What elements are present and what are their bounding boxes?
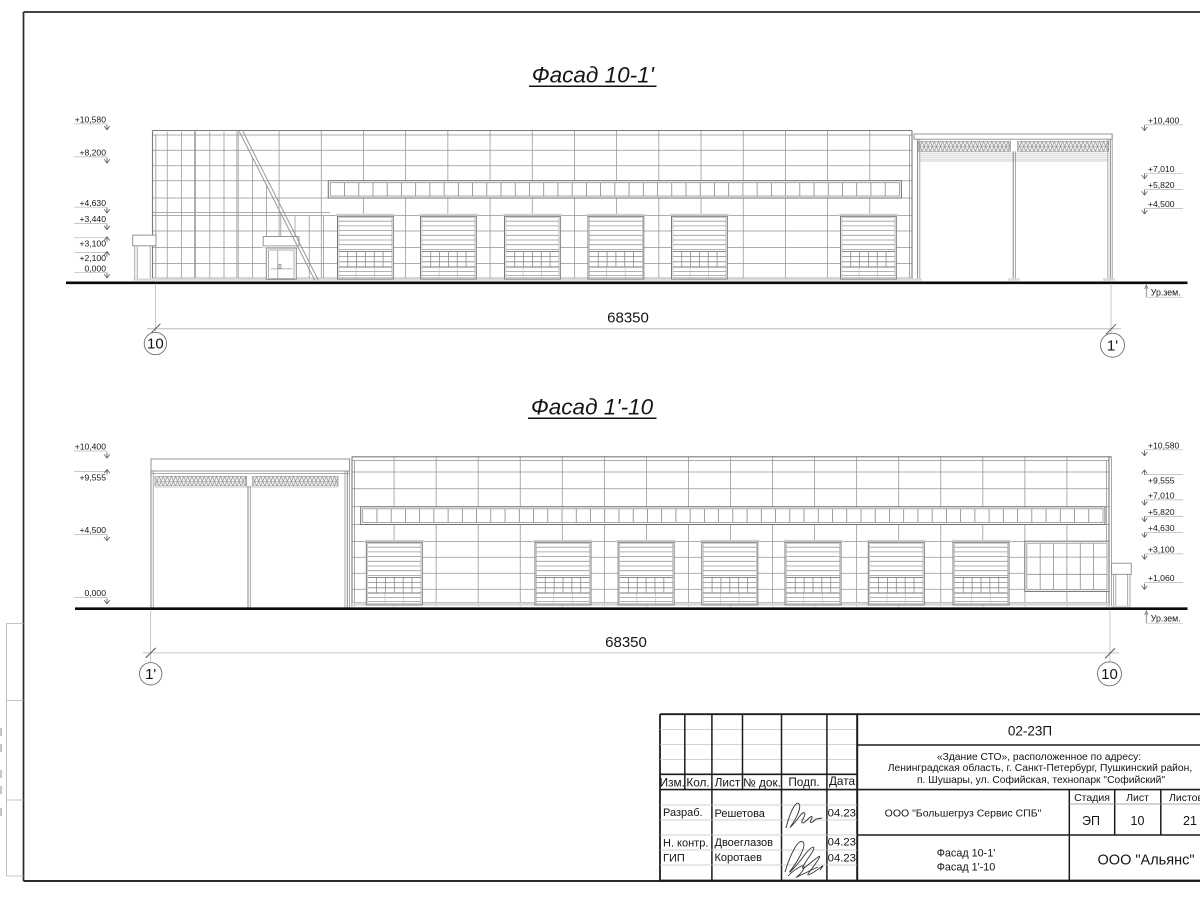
svg-text:Ленинградская область, г. Санк: Ленинградская область, г. Санкт-Петербур… (888, 762, 1192, 774)
svg-text:02-23П: 02-23П (1008, 724, 1052, 739)
svg-text:Стадия: Стадия (1074, 792, 1110, 804)
svg-text:+7,010: +7,010 (1148, 491, 1175, 501)
svg-text:Листов: Листов (1169, 792, 1200, 804)
svg-text:ЭП: ЭП (1082, 814, 1100, 828)
svg-text:+4,630: +4,630 (1148, 523, 1175, 533)
svg-text:Фасад 1'-10: Фасад 1'-10 (937, 861, 996, 873)
svg-text:Решетова: Решетова (715, 808, 766, 820)
svg-text:+9,555: +9,555 (1148, 475, 1175, 485)
svg-text:04.23: 04.23 (828, 808, 856, 820)
svg-text:04.23: 04.23 (828, 853, 856, 865)
svg-text:+10,580: +10,580 (1148, 440, 1180, 450)
svg-text:+3,440: +3,440 (79, 214, 106, 224)
svg-text:Кол.: Кол. (686, 775, 709, 789)
svg-text:«Здание СТО», расположенное по: «Здание СТО», расположенное по адресу: (937, 752, 1141, 763)
svg-text:+1,060: +1,060 (1148, 573, 1175, 583)
svg-text:Дата: Дата (829, 774, 856, 788)
svg-text:Фасад 1'-10: Фасад 1'-10 (531, 395, 654, 420)
svg-text:+4,630: +4,630 (79, 198, 106, 208)
svg-text:Ур.зем.: Ур.зем. (1151, 288, 1181, 298)
svg-text:+5,820: +5,820 (1148, 180, 1175, 190)
svg-text:10: 10 (1101, 666, 1118, 683)
svg-text:+10,400: +10,400 (75, 442, 107, 452)
svg-text:Лист: Лист (1126, 792, 1149, 804)
svg-text:0,000: 0,000 (84, 263, 106, 273)
svg-text:10: 10 (1131, 814, 1145, 828)
svg-text:п. Шушары, ул. Софийская, техн: п. Шушары, ул. Софийская, технопарк "Соф… (917, 774, 1165, 786)
svg-text:1': 1' (1107, 337, 1118, 354)
svg-text:Ур.зем.: Ур.зем. (1151, 614, 1181, 624)
svg-text:+3,100: +3,100 (1148, 545, 1175, 555)
svg-text:21: 21 (1183, 814, 1197, 828)
svg-text:+2,100: +2,100 (79, 253, 106, 263)
svg-text:+3,100: +3,100 (79, 239, 106, 249)
svg-text:04.23: 04.23 (828, 837, 856, 849)
svg-text:0,000: 0,000 (84, 588, 106, 598)
svg-text:+4,500: +4,500 (79, 525, 106, 535)
svg-text:+10,580: +10,580 (75, 115, 107, 125)
svg-text:10: 10 (147, 336, 164, 353)
svg-text:№ док.: № док. (743, 775, 781, 789)
svg-text:Н. контр.: Н. контр. (663, 838, 708, 850)
svg-text:Подп.: Подп. (788, 775, 819, 789)
svg-text:Разраб.: Разраб. (663, 807, 703, 819)
svg-text:Коротаев: Коротаев (715, 852, 763, 864)
svg-text:+10,400: +10,400 (1148, 116, 1180, 126)
svg-text:+7,010: +7,010 (1148, 164, 1175, 174)
svg-text:Фасад 10-1': Фасад 10-1' (532, 63, 655, 88)
svg-text:ООО "Большегруз Сервис СПБ": ООО "Большегруз Сервис СПБ" (885, 808, 1042, 820)
svg-text:ООО "Альянс": ООО "Альянс" (1098, 853, 1195, 869)
svg-text:Лист: Лист (715, 775, 741, 789)
svg-text:+5,820: +5,820 (1148, 507, 1175, 517)
svg-text:+9,555: +9,555 (79, 472, 106, 482)
svg-text:1': 1' (145, 666, 156, 683)
svg-text:Изм.: Изм. (660, 775, 685, 789)
svg-text:Фасад 10-1': Фасад 10-1' (937, 847, 996, 859)
svg-text:68350: 68350 (607, 309, 649, 326)
svg-text:+8,200: +8,200 (79, 148, 106, 158)
svg-text:68350: 68350 (605, 634, 647, 651)
svg-text:ГИП: ГИП (663, 853, 685, 865)
svg-text:Двоеглазов: Двоеглазов (715, 837, 774, 849)
svg-text:+4,500: +4,500 (1148, 199, 1175, 209)
